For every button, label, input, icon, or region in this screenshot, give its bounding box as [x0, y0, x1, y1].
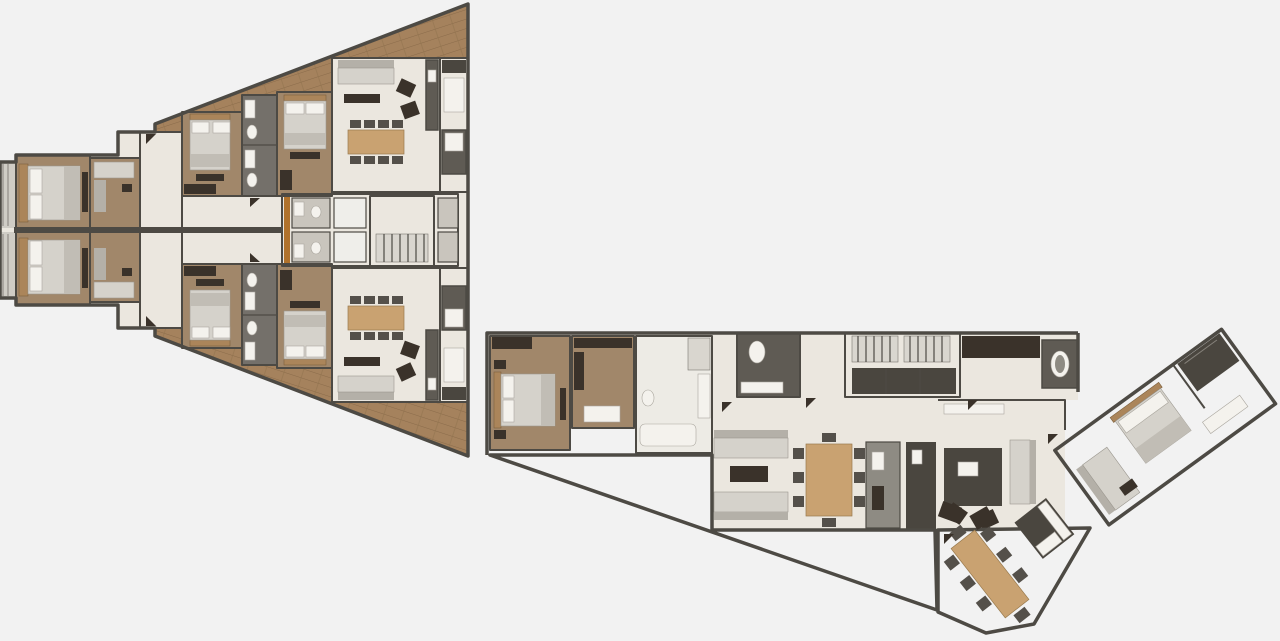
dining-table [348, 130, 404, 154]
tv-console [344, 94, 380, 103]
settee [94, 162, 134, 178]
pillow [30, 195, 42, 219]
shower [688, 338, 710, 370]
bed-headboard [19, 164, 28, 222]
walk-in-closet [572, 336, 634, 428]
wardrobe [280, 170, 292, 190]
bedroom-1 [16, 155, 90, 230]
pillow [503, 376, 514, 398]
entry-hall [140, 132, 182, 230]
nightstand [494, 430, 506, 439]
floorplan-rendering: 3D architectural floor plan — residentia… [0, 0, 1280, 641]
sink-counter [741, 382, 783, 393]
pillow [306, 103, 324, 114]
bedroom-2 [182, 112, 242, 196]
master-bathroom [636, 336, 712, 453]
appliances [444, 78, 464, 112]
elevator-cab [334, 232, 366, 262]
wardrobe [574, 352, 584, 390]
sink [294, 202, 304, 216]
pillow [192, 122, 209, 133]
console [944, 404, 1004, 414]
sofa [714, 438, 788, 458]
tv-panel [560, 388, 566, 420]
pillow [213, 122, 230, 133]
master-bedroom [490, 336, 570, 450]
cooktop [872, 486, 884, 510]
toilet [642, 390, 654, 406]
dressing-room [90, 158, 140, 230]
toilet [749, 341, 765, 363]
pillow [286, 103, 304, 114]
dresser [184, 184, 216, 194]
elevator-cab [334, 198, 366, 228]
toilet [311, 206, 321, 218]
living-dining-room [332, 58, 440, 192]
bed-bench [196, 174, 224, 181]
sofa [714, 492, 788, 512]
bathtub [640, 424, 696, 446]
sofa [338, 68, 394, 84]
bed-bench [82, 172, 88, 212]
tray-table [958, 462, 978, 476]
bed-headboard [284, 95, 326, 101]
toilet [247, 125, 257, 139]
kitchen-sink [872, 452, 884, 470]
wardrobe [492, 336, 532, 349]
dresser [584, 406, 620, 422]
bedroom-3 [277, 92, 332, 196]
kitchen-column [440, 58, 468, 192]
sofa [1010, 440, 1030, 504]
nightstand [494, 360, 506, 369]
core-bathroom [438, 198, 458, 228]
vanity [698, 374, 710, 418]
under-stair-closets [852, 368, 956, 394]
shower [445, 133, 463, 151]
dining-table [806, 444, 852, 516]
bathroom [242, 95, 277, 196]
coffee-table [730, 466, 768, 482]
sink [245, 150, 255, 168]
powder-room [737, 333, 800, 397]
bed-headboard [494, 372, 501, 428]
sink [294, 244, 304, 258]
elevator-doors [284, 197, 290, 263]
toilet [247, 173, 257, 187]
pillow [30, 169, 42, 193]
bed-headboard [190, 114, 230, 120]
sink [245, 100, 255, 118]
rug [944, 448, 1002, 506]
counter [442, 60, 466, 73]
closets [962, 336, 1040, 358]
toilet [311, 242, 321, 254]
floorplan-stage: 3D architectural floor plan — residentia… [0, 0, 1280, 641]
core-bathroom [438, 232, 458, 262]
wardrobe [574, 338, 632, 348]
party-wall [14, 227, 282, 233]
bed-bench [290, 152, 320, 159]
pillow [503, 400, 514, 422]
kitchen-sink [428, 70, 436, 82]
corridor [182, 196, 282, 230]
